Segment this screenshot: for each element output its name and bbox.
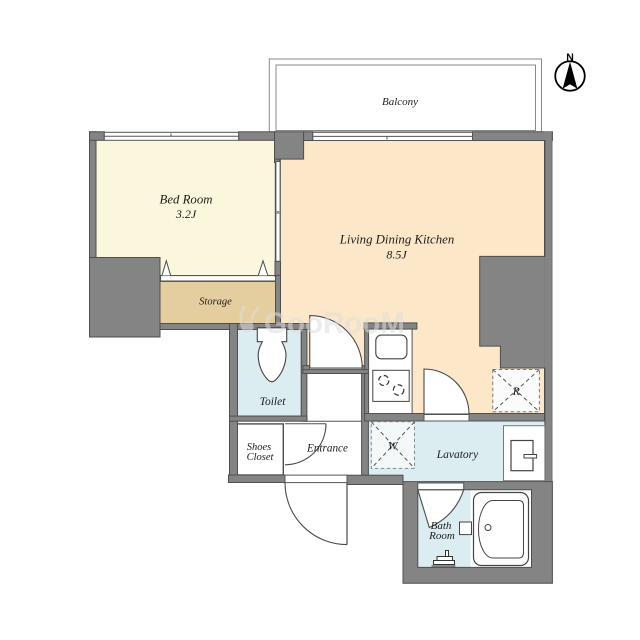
svg-text:3.2J: 3.2J: [175, 207, 197, 221]
svg-text:Room: Room: [428, 530, 455, 542]
svg-text:Bed Room: Bed Room: [160, 193, 213, 207]
svg-text:GooRooM: GooRooM: [264, 307, 405, 340]
svg-text:R: R: [512, 386, 520, 398]
svg-text:N: N: [566, 52, 574, 64]
svg-text:Storage: Storage: [199, 296, 232, 307]
svg-text:8.5J: 8.5J: [386, 247, 407, 261]
svg-text:Entrance: Entrance: [306, 443, 348, 455]
svg-text:Closet: Closet: [247, 452, 275, 463]
svg-text:Toilet: Toilet: [260, 396, 287, 408]
svg-text:Lavatory: Lavatory: [436, 449, 479, 461]
svg-text:W: W: [388, 441, 399, 453]
svg-text:Balcony: Balcony: [382, 96, 418, 108]
svg-text:Living Dining Kitchen: Living Dining Kitchen: [339, 232, 454, 246]
